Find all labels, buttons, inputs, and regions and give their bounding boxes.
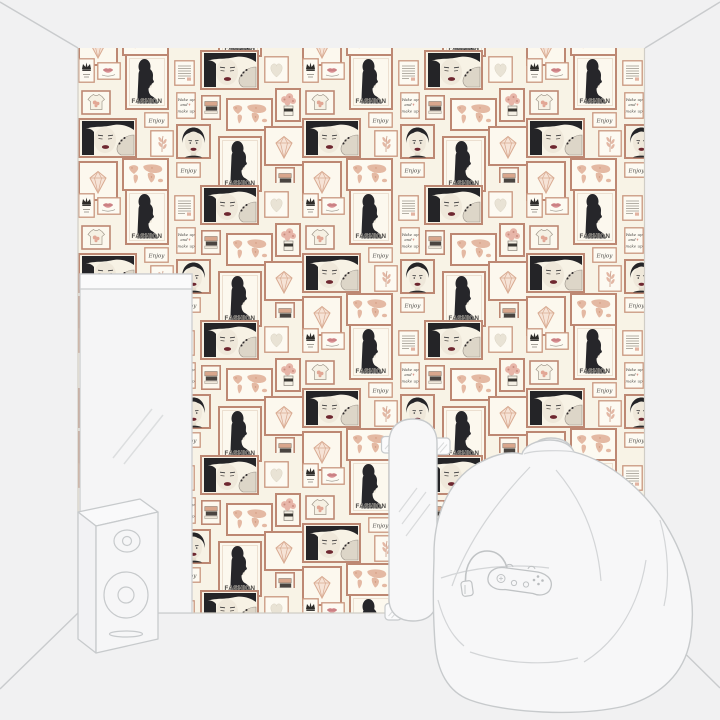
wallpaper-room-mockup: FASHION [0, 0, 720, 720]
skateboard-deck [389, 419, 437, 621]
mirror-top-bar [80, 274, 192, 289]
loudspeaker [78, 499, 158, 653]
room-scene: FASHION [0, 0, 720, 720]
